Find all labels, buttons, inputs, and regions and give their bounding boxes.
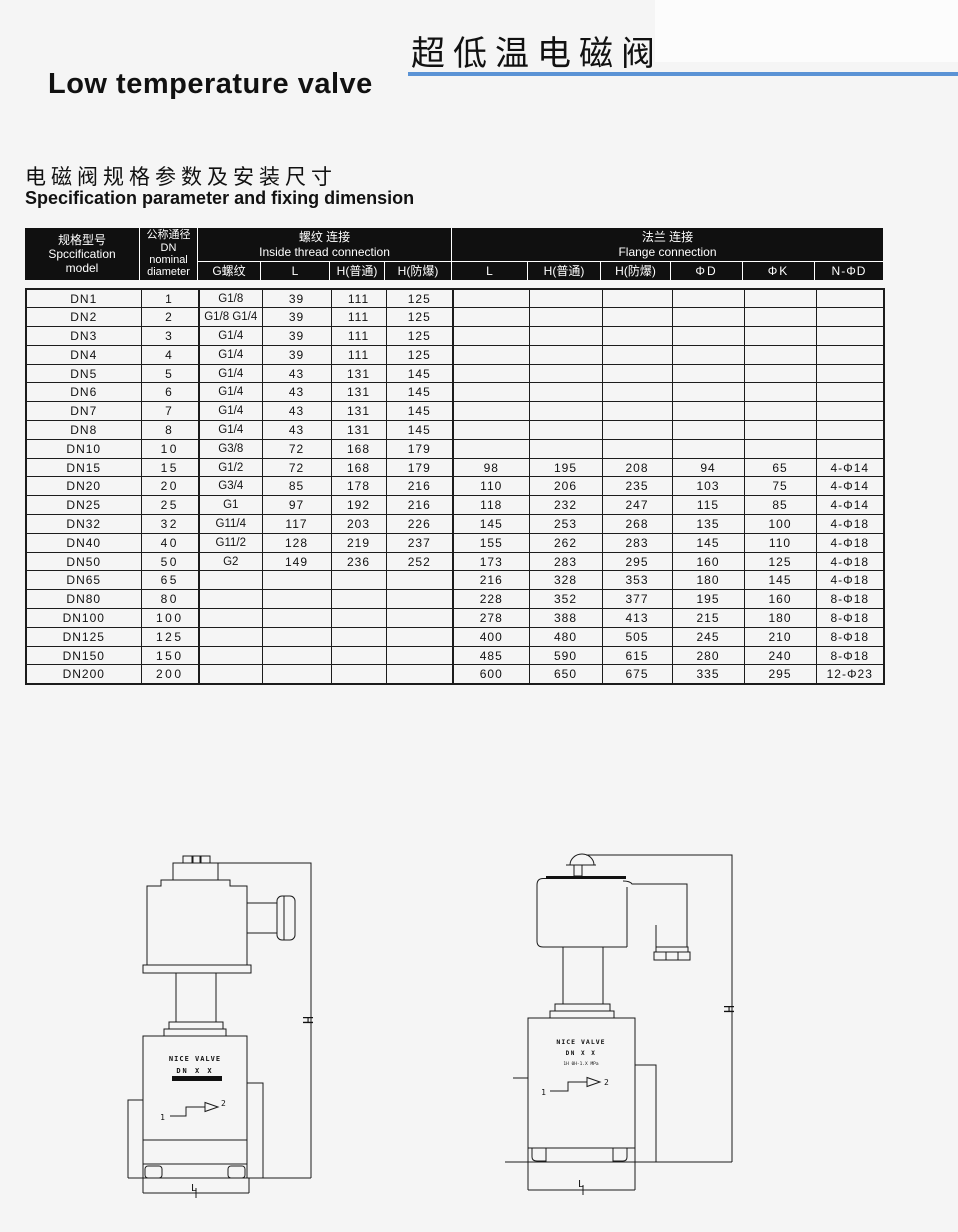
table-cell: 50 xyxy=(141,552,199,571)
table-cell: 216 xyxy=(386,477,453,496)
port-2-label: 2 xyxy=(221,1099,226,1108)
outlet-port-outline xyxy=(247,1083,263,1178)
table-cell: 39 xyxy=(262,289,331,308)
table-cell: 4-Φ14 xyxy=(816,477,884,496)
table-cell xyxy=(262,609,331,628)
table-cell: 283 xyxy=(529,552,602,571)
thread-band xyxy=(143,1140,247,1178)
table-cell xyxy=(199,571,262,590)
table-cell: 131 xyxy=(331,421,386,440)
table-cell xyxy=(816,289,884,308)
table-cell xyxy=(672,345,744,364)
table-row: DN2525G197192216118232247115854-Φ14 xyxy=(26,496,884,515)
table-cell xyxy=(199,590,262,609)
table-cell: G1 xyxy=(199,496,262,515)
table-cell: 117 xyxy=(262,515,331,534)
table-cell xyxy=(453,383,529,402)
table-cell xyxy=(262,627,331,646)
header-flange-h-normal: H(普通) xyxy=(528,261,601,280)
table-cell xyxy=(262,571,331,590)
table-cell: DN15 xyxy=(26,458,141,477)
table-cell: 100 xyxy=(141,609,199,628)
table-cell: DN65 xyxy=(26,571,141,590)
header-nominal-diameter: 公称通径 DN nominal diameter xyxy=(140,228,198,280)
table-cell xyxy=(453,439,529,458)
table-cell: 388 xyxy=(529,609,602,628)
table-cell: 125 xyxy=(386,327,453,346)
table-cell: DN200 xyxy=(26,665,141,684)
table-cell: 505 xyxy=(602,627,672,646)
table-row: DN1010G3/872168179 xyxy=(26,439,884,458)
table-cell: 600 xyxy=(453,665,529,684)
table-cell: 278 xyxy=(453,609,529,628)
table-cell xyxy=(602,289,672,308)
table-cell: 215 xyxy=(672,609,744,628)
table-cell: 98 xyxy=(453,458,529,477)
spec-table: DN11G1/839111125DN22G1/8 G1/439111125DN3… xyxy=(25,288,885,685)
table-cell: 39 xyxy=(262,327,331,346)
table-cell: 43 xyxy=(262,383,331,402)
table-cell: 8-Φ18 xyxy=(816,627,884,646)
header-thread-l: L xyxy=(261,261,330,280)
table-cell: G3/4 xyxy=(199,477,262,496)
table-cell: 32 xyxy=(141,515,199,534)
table-cell xyxy=(602,345,672,364)
table-cell: 110 xyxy=(744,533,816,552)
flow-arrow-head xyxy=(205,1103,218,1112)
table-cell: G1/4 xyxy=(199,327,262,346)
table-cell: 100 xyxy=(744,515,816,534)
table-cell: 149 xyxy=(262,552,331,571)
datasheet-page: { "page": { "title_cn": "超低温电磁阀", "title… xyxy=(0,0,958,1232)
table-cell: G11/4 xyxy=(199,515,262,534)
table-cell: 178 xyxy=(331,477,386,496)
spec-table-header: 规格型号 Spccification model 公称通径 DN nominal… xyxy=(25,228,883,280)
table-cell xyxy=(386,627,453,646)
conduit-fitting xyxy=(656,947,688,952)
table-cell: 111 xyxy=(331,327,386,346)
conduit-hex xyxy=(654,952,690,960)
table-cell xyxy=(744,383,816,402)
table-row: DN55G1/443131145 xyxy=(26,364,884,383)
table-cell: 268 xyxy=(602,515,672,534)
table-cell: 195 xyxy=(672,590,744,609)
terminal-tab xyxy=(183,856,192,863)
flange-foot xyxy=(613,1148,627,1161)
dim-h-extension-line xyxy=(218,863,311,1178)
table-cell: 235 xyxy=(602,477,672,496)
table-cell: 226 xyxy=(386,515,453,534)
table-cell: G1/4 xyxy=(199,345,262,364)
table-row: DN22G1/8 G1/439111125 xyxy=(26,308,884,327)
table-cell: 3 xyxy=(141,327,199,346)
table-cell: 145 xyxy=(386,364,453,383)
table-cell xyxy=(744,421,816,440)
table-cell: 413 xyxy=(602,609,672,628)
table-cell xyxy=(331,571,386,590)
table-cell: 72 xyxy=(262,439,331,458)
table-cell: 328 xyxy=(529,571,602,590)
table-cell xyxy=(386,590,453,609)
table-cell: 168 xyxy=(331,439,386,458)
table-cell: 72 xyxy=(262,458,331,477)
table-cell xyxy=(331,646,386,665)
table-cell: 237 xyxy=(386,533,453,552)
table-cell xyxy=(602,308,672,327)
table-cell xyxy=(262,590,331,609)
table-cell xyxy=(529,383,602,402)
table-cell xyxy=(331,627,386,646)
table-cell: 352 xyxy=(529,590,602,609)
coil-housing xyxy=(537,879,627,948)
table-cell: 80 xyxy=(141,590,199,609)
table-cell: 173 xyxy=(453,552,529,571)
table-cell: DN2 xyxy=(26,308,141,327)
table-cell xyxy=(744,402,816,421)
table-cell: G1/4 xyxy=(199,402,262,421)
table-cell: DN150 xyxy=(26,646,141,665)
table-cell: 150 xyxy=(141,646,199,665)
table-cell: 40 xyxy=(141,533,199,552)
header-flange-l: L xyxy=(452,261,528,280)
table-cell: 179 xyxy=(386,439,453,458)
table-cell xyxy=(744,345,816,364)
table-cell: 400 xyxy=(453,627,529,646)
table-cell: 4-Φ18 xyxy=(816,552,884,571)
table-cell: 110 xyxy=(453,477,529,496)
table-cell xyxy=(816,308,884,327)
table-cell: 650 xyxy=(529,665,602,684)
table-cell: 15 xyxy=(141,458,199,477)
header-thread-g: G螺纹 xyxy=(198,261,261,280)
table-cell: 145 xyxy=(453,515,529,534)
table-cell xyxy=(816,439,884,458)
table-cell: 97 xyxy=(262,496,331,515)
table-cell: DN20 xyxy=(26,477,141,496)
table-cell: 131 xyxy=(331,364,386,383)
table-cell xyxy=(602,364,672,383)
table-row: DN3232G11/41172032261452532681351004-Φ18 xyxy=(26,515,884,534)
table-cell: 118 xyxy=(453,496,529,515)
table-cell: 262 xyxy=(529,533,602,552)
table-cell: 4-Φ18 xyxy=(816,533,884,552)
table-cell: 245 xyxy=(672,627,744,646)
table-cell: 125 xyxy=(744,552,816,571)
table-cell: 200 xyxy=(141,665,199,684)
table-cell xyxy=(672,308,744,327)
table-cell xyxy=(602,439,672,458)
table-cell: 4-Φ14 xyxy=(816,496,884,515)
table-cell: DN8 xyxy=(26,421,141,440)
table-cell: 219 xyxy=(331,533,386,552)
table-cell: DN1 xyxy=(26,289,141,308)
table-cell xyxy=(453,402,529,421)
table-row: DN88G1/443131145 xyxy=(26,421,884,440)
table-cell xyxy=(199,609,262,628)
cable-gland-arm xyxy=(247,903,277,933)
conduit-arm xyxy=(623,881,687,947)
coil-base-plate xyxy=(143,965,251,973)
table-cell: 128 xyxy=(262,533,331,552)
header-flange-n-phi-d: N-ΦD xyxy=(815,261,883,280)
flow-arrow xyxy=(170,1107,205,1116)
table-cell xyxy=(602,421,672,440)
spec-table-grid: DN11G1/839111125DN22G1/8 G1/439111125DN3… xyxy=(25,288,885,685)
dim-l-label: L xyxy=(578,1179,584,1190)
table-cell: G3/8 xyxy=(199,439,262,458)
port-2-label: 2 xyxy=(604,1078,609,1087)
table-cell xyxy=(453,364,529,383)
table-cell: 85 xyxy=(262,477,331,496)
table-cell xyxy=(262,646,331,665)
table-cell: 8-Φ18 xyxy=(816,646,884,665)
table-cell: 253 xyxy=(529,515,602,534)
table-cell: 192 xyxy=(331,496,386,515)
table-cell: 208 xyxy=(602,458,672,477)
table-row: DN80802283523771951608-Φ18 xyxy=(26,590,884,609)
table-row: DN1251254004805052452108-Φ18 xyxy=(26,627,884,646)
valve-brand-label: NICE VALVE xyxy=(169,1055,221,1063)
table-row: DN2020G3/485178216110206235103754-Φ14 xyxy=(26,477,884,496)
table-cell xyxy=(602,383,672,402)
table-cell xyxy=(529,327,602,346)
table-cell xyxy=(672,289,744,308)
table-cell: G1/8 xyxy=(199,289,262,308)
table-cell: 94 xyxy=(672,458,744,477)
table-cell: G1/4 xyxy=(199,383,262,402)
table-cell: DN100 xyxy=(26,609,141,628)
table-cell: G2 xyxy=(199,552,262,571)
table-cell: 145 xyxy=(672,533,744,552)
valve-spec-line: 1H 0H-1.X MPa xyxy=(563,1061,599,1067)
table-cell: 20 xyxy=(141,477,199,496)
table-cell: 195 xyxy=(529,458,602,477)
table-cell: 377 xyxy=(602,590,672,609)
valve-brand-label: NICE VALVE xyxy=(556,1038,605,1046)
table-cell xyxy=(529,421,602,440)
table-cell: 145 xyxy=(386,421,453,440)
valve-body xyxy=(143,1036,247,1140)
table-cell xyxy=(816,345,884,364)
terminal-tab xyxy=(201,856,210,863)
table-cell xyxy=(199,646,262,665)
table-cell xyxy=(199,665,262,684)
table-cell: 160 xyxy=(672,552,744,571)
table-cell: 145 xyxy=(386,402,453,421)
table-cell: 125 xyxy=(141,627,199,646)
dim-h-label: H xyxy=(299,1016,314,1024)
table-cell: G1/4 xyxy=(199,421,262,440)
table-cell: 103 xyxy=(672,477,744,496)
table-row: DN11G1/839111125 xyxy=(26,289,884,308)
table-row: DN1001002783884132151808-Φ18 xyxy=(26,609,884,628)
table-cell xyxy=(529,402,602,421)
table-cell: 125 xyxy=(386,308,453,327)
table-cell: 111 xyxy=(331,289,386,308)
table-cell xyxy=(529,308,602,327)
table-cell: 111 xyxy=(331,345,386,364)
table-cell xyxy=(529,289,602,308)
dim-h-extension-line xyxy=(586,855,732,1162)
table-cell xyxy=(453,345,529,364)
table-cell: 6 xyxy=(141,383,199,402)
page-corner-panel xyxy=(655,0,958,62)
table-row: DN33G1/439111125 xyxy=(26,327,884,346)
section-title-english: Specification parameter and fixing dimen… xyxy=(25,188,414,209)
valve-model-label: DN X X xyxy=(566,1050,597,1057)
table-cell: 4-Φ14 xyxy=(816,458,884,477)
table-cell: 232 xyxy=(529,496,602,515)
table-cell: 131 xyxy=(331,383,386,402)
header-flange-phi-d: ΦD xyxy=(671,261,743,280)
table-cell: 168 xyxy=(331,458,386,477)
table-cell: 228 xyxy=(453,590,529,609)
table-row: DN1515G1/2721681799819520894654-Φ14 xyxy=(26,458,884,477)
table-cell: 131 xyxy=(331,402,386,421)
table-cell xyxy=(744,439,816,458)
table-cell: 7 xyxy=(141,402,199,421)
table-cell: 615 xyxy=(602,646,672,665)
table-cell: 675 xyxy=(602,665,672,684)
header-flange-connection-group: 法兰 连接 Flange connection xyxy=(452,228,883,261)
port-1-label: 1 xyxy=(541,1088,546,1097)
table-cell xyxy=(672,327,744,346)
valve-neck xyxy=(563,947,603,1004)
table-cell: DN32 xyxy=(26,515,141,534)
table-cell: 206 xyxy=(529,477,602,496)
outlet-port-outline xyxy=(635,1065,656,1162)
table-cell xyxy=(744,289,816,308)
header-specification-model: 规格型号 Spccification model xyxy=(25,228,140,280)
table-row: DN44G1/439111125 xyxy=(26,345,884,364)
table-cell: 480 xyxy=(529,627,602,646)
table-cell: 43 xyxy=(262,364,331,383)
table-cell: 111 xyxy=(331,308,386,327)
table-cell: 4-Φ18 xyxy=(816,515,884,534)
table-row: DN65652163283531801454-Φ18 xyxy=(26,571,884,590)
table-cell: 12-Φ23 xyxy=(816,665,884,684)
table-cell xyxy=(453,289,529,308)
table-cell: DN40 xyxy=(26,533,141,552)
table-cell xyxy=(331,665,386,684)
table-cell: 85 xyxy=(744,496,816,515)
table-cell: 252 xyxy=(386,552,453,571)
table-cell: 75 xyxy=(744,477,816,496)
table-cell xyxy=(744,308,816,327)
table-cell: 125 xyxy=(386,289,453,308)
accent-rule xyxy=(408,72,958,76)
table-cell: DN125 xyxy=(26,627,141,646)
table-cell: 179 xyxy=(386,458,453,477)
table-cell: 10 xyxy=(141,439,199,458)
table-cell: 283 xyxy=(602,533,672,552)
flange-foot xyxy=(532,1148,546,1161)
table-cell xyxy=(816,421,884,440)
table-cell: G1/4 xyxy=(199,364,262,383)
table-cell: DN50 xyxy=(26,552,141,571)
inlet-port-outline xyxy=(128,1100,143,1178)
table-cell: 353 xyxy=(602,571,672,590)
dim-l-label: L xyxy=(191,1183,197,1194)
table-cell xyxy=(262,665,331,684)
terminal-tab xyxy=(193,856,200,863)
table-cell: DN7 xyxy=(26,402,141,421)
table-cell: 590 xyxy=(529,646,602,665)
table-cell: DN80 xyxy=(26,590,141,609)
header-flange-h-exproof: H(防爆) xyxy=(601,261,671,280)
dim-h-label: H xyxy=(720,1005,735,1013)
table-cell xyxy=(672,421,744,440)
table-row: DN66G1/443131145 xyxy=(26,383,884,402)
table-cell xyxy=(386,665,453,684)
flow-arrow xyxy=(550,1082,587,1091)
table-row: DN4040G11/21282192371552622831451104-Φ18 xyxy=(26,533,884,552)
table-row: DN5050G21492362521732832951601254-Φ18 xyxy=(26,552,884,571)
table-cell xyxy=(386,609,453,628)
section-title-chinese: 电磁阀规格参数及安装尺寸 xyxy=(25,161,337,191)
table-cell xyxy=(453,421,529,440)
spec-table-body: DN11G1/839111125DN22G1/8 G1/439111125DN3… xyxy=(26,289,884,684)
header-flange-phi-k: ΦK xyxy=(743,261,815,280)
hex-nut xyxy=(228,1166,245,1178)
table-cell xyxy=(816,402,884,421)
flow-arrow-head xyxy=(587,1078,600,1087)
table-cell: G11/2 xyxy=(199,533,262,552)
table-cell: 295 xyxy=(602,552,672,571)
table-cell: DN6 xyxy=(26,383,141,402)
cable-gland-cap xyxy=(277,896,295,940)
valve-neck xyxy=(176,973,216,1022)
table-cell: 115 xyxy=(672,496,744,515)
table-cell xyxy=(453,327,529,346)
table-cell xyxy=(672,364,744,383)
table-cell xyxy=(602,327,672,346)
table-cell: 485 xyxy=(453,646,529,665)
table-cell xyxy=(672,439,744,458)
table-cell: 4-Φ18 xyxy=(816,571,884,590)
terminal-cover xyxy=(173,863,218,880)
table-cell: 8-Φ18 xyxy=(816,590,884,609)
flange-valve-drawing: NICE VALVE DN X X 1H 0H-1.X MPa 1 2 H L xyxy=(490,843,750,1195)
table-cell: 145 xyxy=(386,383,453,402)
table-cell: G1/2 xyxy=(199,458,262,477)
table-cell xyxy=(386,571,453,590)
table-cell xyxy=(199,627,262,646)
valve-model-label: DN X X xyxy=(176,1067,213,1075)
dome-cap xyxy=(570,854,594,865)
table-cell: 216 xyxy=(453,571,529,590)
table-cell xyxy=(602,402,672,421)
table-cell: 180 xyxy=(672,571,744,590)
table-row: DN1501504855906152802408-Φ18 xyxy=(26,646,884,665)
table-cell xyxy=(816,327,884,346)
table-cell: G1/8 G1/4 xyxy=(199,308,262,327)
table-cell: 216 xyxy=(386,496,453,515)
table-cell xyxy=(529,364,602,383)
page-title-chinese: 超低温电磁阀 xyxy=(411,26,663,75)
table-cell xyxy=(529,345,602,364)
table-cell: DN5 xyxy=(26,364,141,383)
table-cell xyxy=(529,439,602,458)
dome-bolt xyxy=(574,865,582,876)
table-cell: 39 xyxy=(262,308,331,327)
table-cell xyxy=(386,646,453,665)
table-cell xyxy=(331,609,386,628)
table-cell: 125 xyxy=(386,345,453,364)
table-cell: 155 xyxy=(453,533,529,552)
table-cell xyxy=(672,402,744,421)
table-cell: 25 xyxy=(141,496,199,515)
